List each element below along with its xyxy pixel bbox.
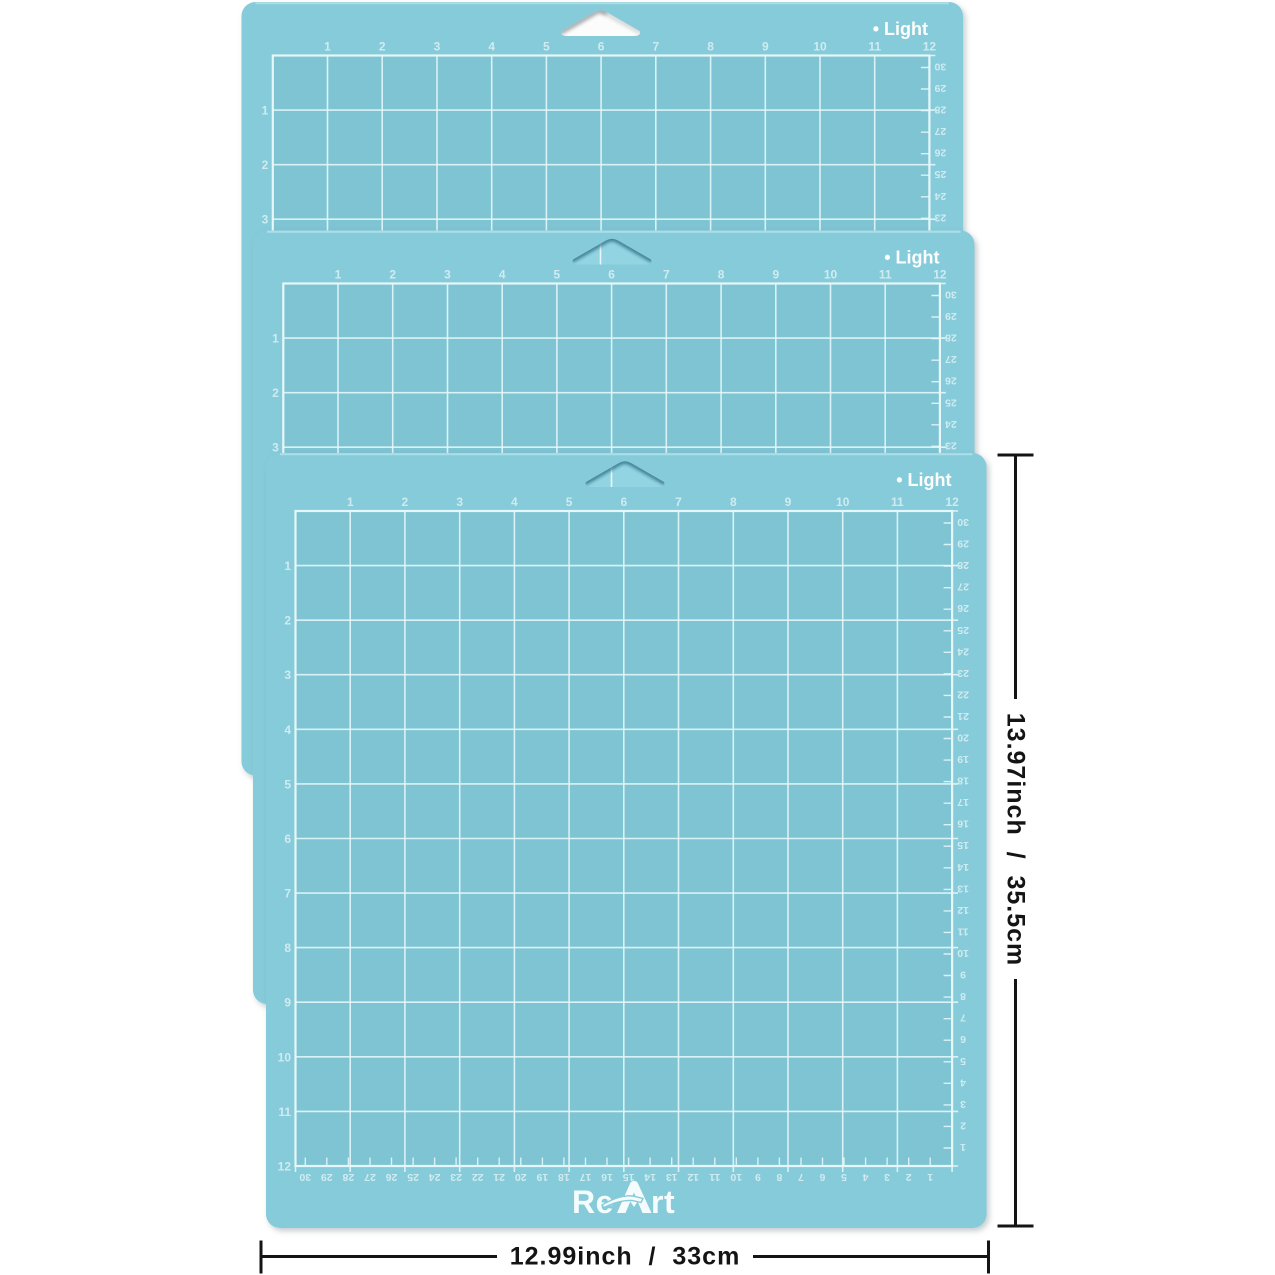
svg-text:7: 7 <box>663 268 670 282</box>
svg-text:5: 5 <box>841 1171 847 1183</box>
svg-text:25: 25 <box>945 396 957 408</box>
svg-text:rt: rt <box>651 1184 675 1220</box>
svg-text:6: 6 <box>960 1033 966 1045</box>
svg-text:17: 17 <box>957 796 969 808</box>
svg-text:3: 3 <box>444 268 451 282</box>
svg-text:29: 29 <box>934 82 946 94</box>
svg-text:6: 6 <box>284 832 291 846</box>
svg-text:19: 19 <box>957 753 969 765</box>
svg-text:30: 30 <box>945 289 957 301</box>
svg-text:12: 12 <box>687 1171 699 1183</box>
svg-text:1: 1 <box>960 1141 966 1153</box>
svg-text:24: 24 <box>945 418 957 430</box>
svg-text:2: 2 <box>960 1119 966 1131</box>
svg-text:27: 27 <box>364 1171 376 1183</box>
svg-text:2: 2 <box>389 268 396 282</box>
svg-text:24: 24 <box>429 1171 441 1183</box>
svg-text:9: 9 <box>785 495 792 509</box>
svg-text:2: 2 <box>272 386 279 400</box>
svg-text:23: 23 <box>957 667 969 679</box>
svg-text:12: 12 <box>278 1160 292 1174</box>
svg-text:4: 4 <box>284 723 291 737</box>
svg-text:23: 23 <box>450 1171 462 1183</box>
svg-text:9: 9 <box>772 268 779 282</box>
svg-text:5: 5 <box>284 777 291 791</box>
svg-text:8: 8 <box>960 990 966 1002</box>
svg-text:1: 1 <box>335 268 342 282</box>
svg-text:9: 9 <box>960 969 966 981</box>
svg-text:4: 4 <box>960 1076 966 1088</box>
svg-text:28: 28 <box>342 1171 354 1183</box>
svg-text:4: 4 <box>499 268 506 282</box>
svg-text:30: 30 <box>299 1171 311 1183</box>
svg-text:7: 7 <box>652 40 659 54</box>
svg-text:25: 25 <box>407 1171 419 1183</box>
svg-text:5: 5 <box>960 1055 966 1067</box>
svg-text:3: 3 <box>284 668 291 682</box>
svg-text:11: 11 <box>709 1171 720 1183</box>
svg-text:2: 2 <box>906 1171 912 1183</box>
svg-text:29: 29 <box>945 310 957 322</box>
svg-text:24: 24 <box>957 645 969 657</box>
svg-text:• Light: • Light <box>896 470 951 490</box>
svg-text:7: 7 <box>798 1171 804 1183</box>
svg-text:12: 12 <box>945 495 959 509</box>
svg-text:10: 10 <box>730 1171 742 1183</box>
svg-text:16: 16 <box>957 818 969 830</box>
svg-text:26: 26 <box>945 375 957 387</box>
svg-text:26: 26 <box>957 602 969 614</box>
svg-text:1: 1 <box>324 40 331 54</box>
svg-text:3: 3 <box>456 495 463 509</box>
svg-text:20: 20 <box>515 1171 527 1183</box>
svg-text:18: 18 <box>558 1171 570 1183</box>
svg-text:21: 21 <box>957 710 969 722</box>
svg-text:22: 22 <box>957 688 969 700</box>
svg-text:10: 10 <box>813 40 827 54</box>
svg-text:27: 27 <box>957 581 969 593</box>
svg-text:3: 3 <box>262 213 269 227</box>
svg-text:28: 28 <box>934 104 946 116</box>
svg-text:29: 29 <box>321 1171 333 1183</box>
svg-text:11: 11 <box>891 495 904 509</box>
svg-text:8: 8 <box>730 495 737 509</box>
svg-text:24: 24 <box>934 190 946 202</box>
svg-text:8: 8 <box>776 1171 782 1183</box>
svg-text:3: 3 <box>272 441 279 455</box>
svg-text:5: 5 <box>543 40 550 54</box>
svg-text:6: 6 <box>819 1171 825 1183</box>
svg-text:10: 10 <box>836 495 850 509</box>
svg-text:28: 28 <box>957 559 969 571</box>
svg-text:15: 15 <box>957 839 969 851</box>
svg-text:5: 5 <box>566 495 573 509</box>
svg-text:9: 9 <box>755 1171 761 1183</box>
svg-text:1: 1 <box>927 1171 933 1183</box>
svg-text:13: 13 <box>957 882 969 894</box>
svg-text:7: 7 <box>284 887 291 901</box>
svg-text:14: 14 <box>957 861 969 873</box>
svg-text:25: 25 <box>957 624 969 636</box>
svg-text:27: 27 <box>934 125 946 137</box>
svg-text:29: 29 <box>957 538 969 550</box>
svg-text:2: 2 <box>379 40 386 54</box>
svg-text:30: 30 <box>957 516 969 528</box>
svg-text:30: 30 <box>934 61 946 73</box>
svg-text:27: 27 <box>945 353 957 365</box>
svg-text:12.99inch / 33cm: 12.99inch / 33cm <box>510 1243 741 1271</box>
svg-text:1: 1 <box>262 104 269 118</box>
svg-text:3: 3 <box>434 40 441 54</box>
svg-text:26: 26 <box>934 147 946 159</box>
svg-text:23: 23 <box>945 439 957 451</box>
svg-text:28: 28 <box>945 332 957 344</box>
svg-text:• Light: • Light <box>884 248 939 268</box>
svg-text:12: 12 <box>957 904 969 916</box>
svg-text:1: 1 <box>272 332 279 346</box>
svg-text:6: 6 <box>620 495 627 509</box>
svg-text:3: 3 <box>884 1171 890 1183</box>
svg-text:17: 17 <box>580 1171 592 1183</box>
svg-text:7: 7 <box>960 1012 966 1024</box>
svg-text:11: 11 <box>868 40 881 54</box>
svg-text:11: 11 <box>278 1105 291 1119</box>
svg-text:9: 9 <box>284 996 291 1010</box>
svg-text:13: 13 <box>666 1171 678 1183</box>
svg-text:8: 8 <box>718 268 725 282</box>
svg-text:13.97inch / 35.5cm: 13.97inch / 35.5cm <box>1002 713 1030 966</box>
svg-text:12: 12 <box>923 40 937 54</box>
svg-text:2: 2 <box>284 614 291 628</box>
svg-text:1: 1 <box>284 559 291 573</box>
svg-text:18: 18 <box>957 775 969 787</box>
svg-text:4: 4 <box>863 1171 869 1183</box>
svg-text:4: 4 <box>511 495 518 509</box>
svg-text:16: 16 <box>601 1171 613 1183</box>
svg-text:9: 9 <box>762 40 769 54</box>
svg-text:19: 19 <box>536 1171 548 1183</box>
svg-text:7: 7 <box>675 495 682 509</box>
svg-text:1: 1 <box>347 495 354 509</box>
svg-text:• Light: • Light <box>873 19 928 39</box>
svg-text:8: 8 <box>707 40 714 54</box>
svg-text:26: 26 <box>386 1171 398 1183</box>
svg-text:20: 20 <box>957 732 969 744</box>
svg-text:23: 23 <box>934 211 946 223</box>
svg-text:14: 14 <box>644 1171 656 1183</box>
svg-text:5: 5 <box>554 268 561 282</box>
svg-text:11: 11 <box>879 268 892 282</box>
svg-text:2: 2 <box>262 158 269 172</box>
svg-text:3: 3 <box>960 1098 966 1110</box>
svg-text:6: 6 <box>598 40 605 54</box>
svg-text:22: 22 <box>472 1171 484 1183</box>
svg-text:10: 10 <box>278 1050 292 1064</box>
svg-text:11: 11 <box>957 925 968 937</box>
svg-text:6: 6 <box>608 268 615 282</box>
svg-text:8: 8 <box>284 941 291 955</box>
svg-text:2: 2 <box>402 495 409 509</box>
svg-text:25: 25 <box>934 168 946 180</box>
svg-text:10: 10 <box>824 268 838 282</box>
svg-text:10: 10 <box>957 947 969 959</box>
svg-text:21: 21 <box>493 1171 505 1183</box>
svg-text:4: 4 <box>488 40 495 54</box>
svg-text:12: 12 <box>933 268 947 282</box>
